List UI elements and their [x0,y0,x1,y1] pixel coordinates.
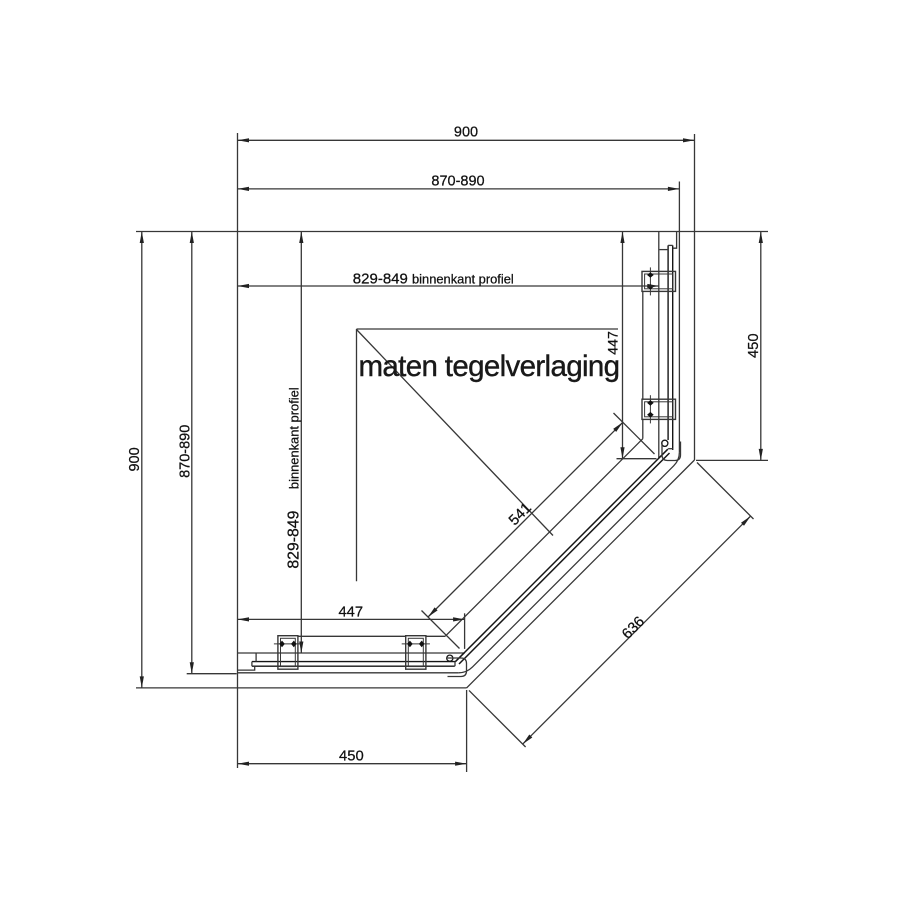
svg-text:829-849: 829-849 [285,510,302,568]
svg-text:447: 447 [338,604,363,620]
svg-text:450: 450 [746,333,762,358]
svg-text:900: 900 [454,125,478,141]
svg-text:829-849 binnenkant profiel: 829-849 binnenkant profiel [353,271,514,288]
svg-text:450: 450 [339,749,364,765]
svg-text:maten tegelverlaging: maten tegelverlaging [359,350,620,383]
svg-text:870-890: 870-890 [431,173,484,189]
svg-text:binnenkant profiel: binnenkant profiel [286,387,301,489]
svg-text:900: 900 [127,447,143,471]
svg-text:870-890: 870-890 [177,425,193,478]
